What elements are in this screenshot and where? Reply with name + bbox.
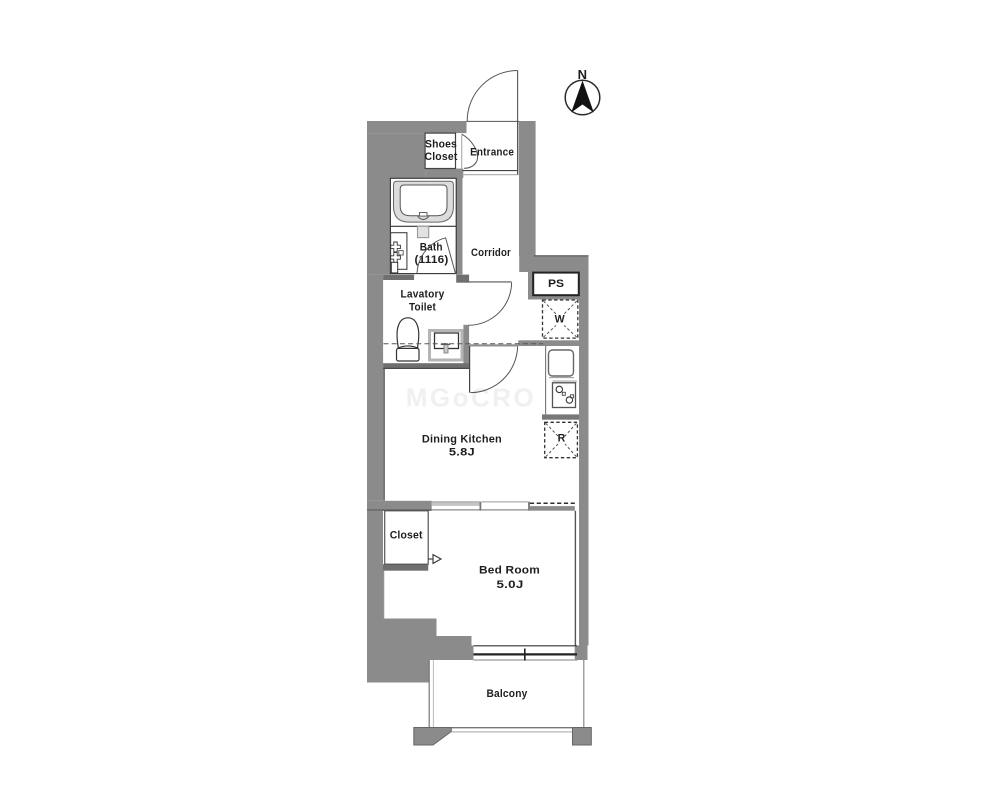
svg-text:Bath: Bath <box>420 242 443 254</box>
svg-text:W: W <box>555 314 565 326</box>
svg-text:MGoCRO: MGoCRO <box>406 383 537 413</box>
svg-text:N: N <box>578 67 587 82</box>
svg-text:Closet: Closet <box>425 151 458 163</box>
svg-text:Corridor: Corridor <box>471 247 511 259</box>
svg-text:Shoes: Shoes <box>425 138 457 150</box>
svg-text:Lavatory: Lavatory <box>401 288 445 300</box>
svg-text:R: R <box>558 433 566 445</box>
svg-text:PS: PS <box>548 278 564 290</box>
svg-text:Dining Kitchen: Dining Kitchen <box>422 434 502 446</box>
svg-text:Entrance: Entrance <box>470 146 514 158</box>
svg-text:Closet: Closet <box>390 530 423 542</box>
svg-text:5.8J: 5.8J <box>449 447 475 459</box>
svg-text:Balcony: Balcony <box>487 688 528 700</box>
svg-text:Bed Room: Bed Room <box>479 565 540 577</box>
svg-text:5.0J: 5.0J <box>497 579 524 591</box>
svg-text:Toilet: Toilet <box>409 302 436 314</box>
